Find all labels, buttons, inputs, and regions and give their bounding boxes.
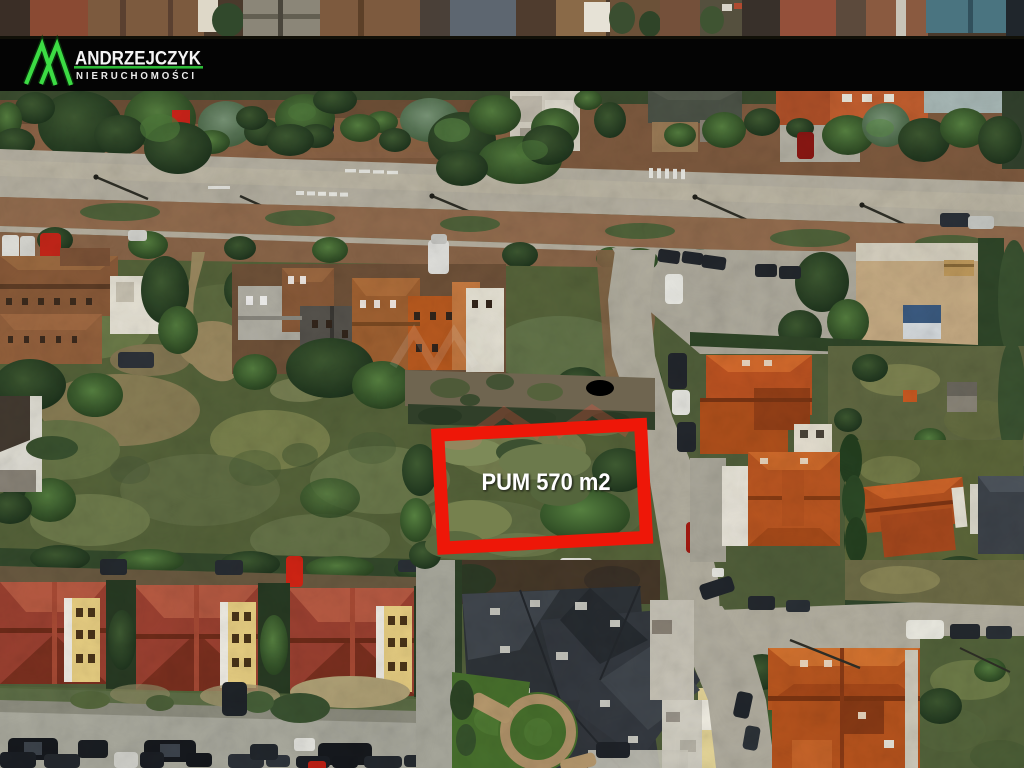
svg-text:PUM 570 m2: PUM 570 m2: [482, 469, 611, 496]
svg-text:NIERUCHOMOŚCI: NIERUCHOMOŚCI: [76, 69, 197, 82]
